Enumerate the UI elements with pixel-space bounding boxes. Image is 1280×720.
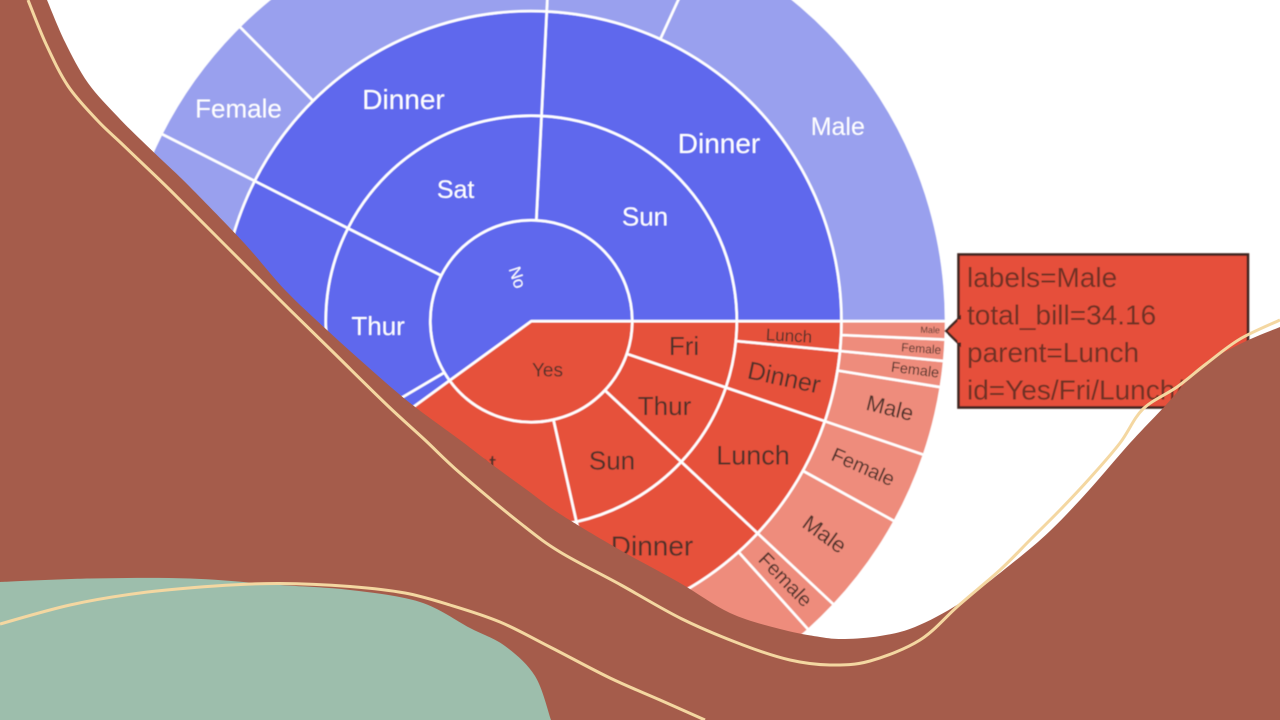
svg-text:Thur: Thur <box>351 311 405 341</box>
svg-text:Lunch: Lunch <box>716 441 790 471</box>
svg-text:Dinner: Dinner <box>362 84 444 115</box>
svg-text:labels=Male: labels=Male <box>967 262 1117 293</box>
svg-text:Male: Male <box>811 113 865 141</box>
svg-text:Lunch: Lunch <box>765 325 812 346</box>
svg-text:Female: Female <box>901 340 942 357</box>
svg-text:Male: Male <box>920 325 940 335</box>
svg-text:Fri: Fri <box>669 331 699 361</box>
svg-text:total_bill=34.16: total_bill=34.16 <box>967 300 1156 331</box>
svg-text:Female: Female <box>195 94 282 124</box>
svg-text:Sat: Sat <box>437 176 475 204</box>
svg-text:Sun: Sun <box>589 446 635 476</box>
svg-text:Thur: Thur <box>638 391 692 421</box>
svg-text:parent=Lunch: parent=Lunch <box>967 337 1139 368</box>
svg-text:Dinner: Dinner <box>678 128 760 159</box>
svg-text:Yes: Yes <box>532 361 563 382</box>
svg-text:Sun: Sun <box>622 201 668 231</box>
